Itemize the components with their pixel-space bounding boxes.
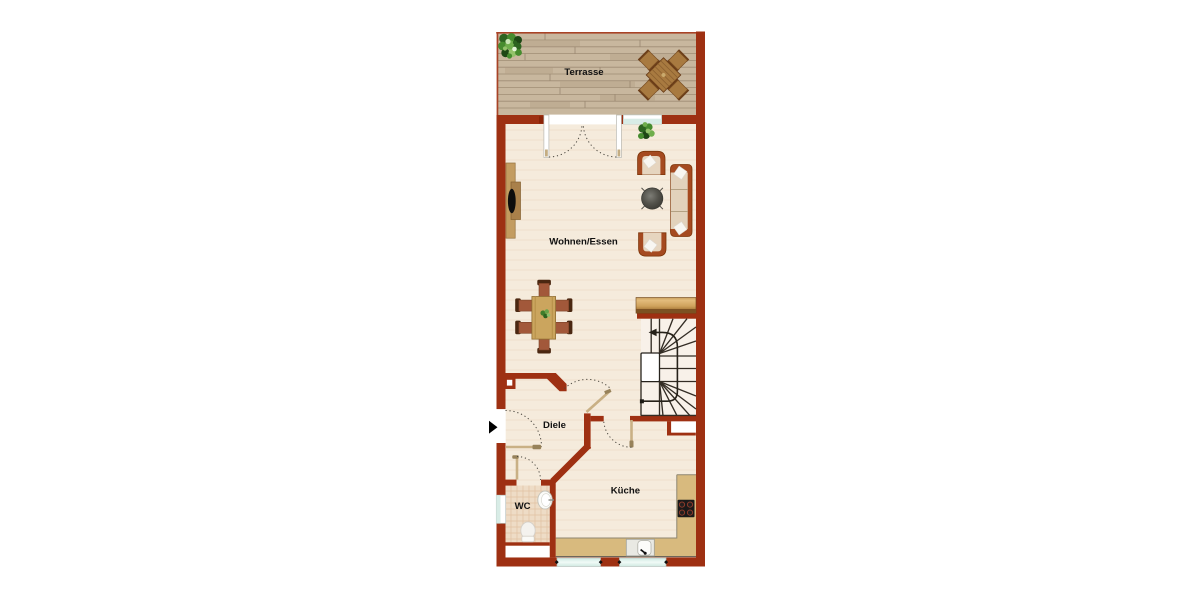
svg-text:WC: WC <box>515 501 531 512</box>
svg-text:Küche: Küche <box>611 486 640 497</box>
svg-text:Wohnen/Essen: Wohnen/Essen <box>549 237 618 248</box>
svg-text:Diele: Diele <box>543 420 566 431</box>
svg-text:Terrasse: Terrasse <box>564 67 603 78</box>
